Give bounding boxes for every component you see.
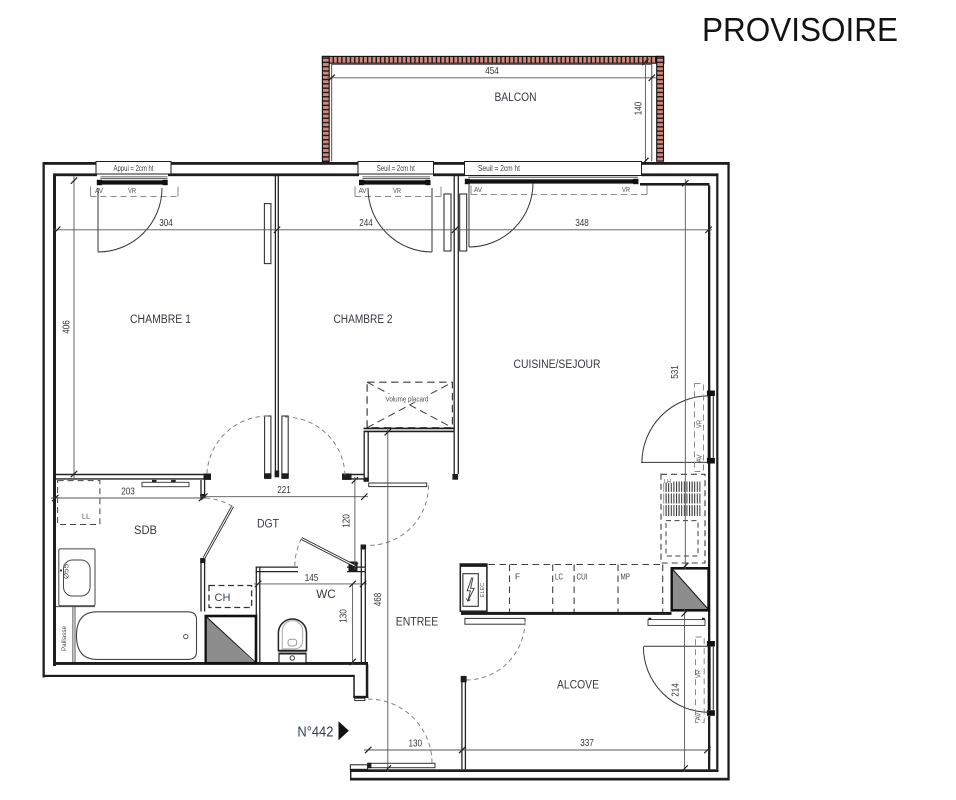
svg-text:468: 468 — [372, 593, 384, 607]
svg-text:130: 130 — [338, 609, 350, 623]
svg-text:304: 304 — [159, 217, 173, 229]
svg-text:Paillasse: Paillasse — [61, 626, 68, 651]
svg-text:CHAMBRE 2: CHAMBRE 2 — [334, 314, 393, 326]
svg-text:VR: VR — [393, 186, 401, 195]
svg-text:N°442: N°442 — [297, 724, 333, 741]
svg-text:Volume placard: Volume placard — [386, 394, 429, 403]
svg-text:VR: VR — [622, 185, 630, 194]
svg-text:203: 203 — [121, 486, 135, 498]
svg-text:214: 214 — [669, 683, 681, 697]
svg-text:Seuil = 2cm ht: Seuil = 2cm ht — [478, 164, 521, 173]
svg-text:221: 221 — [277, 484, 291, 496]
svg-text:454: 454 — [485, 65, 499, 77]
svg-text:406: 406 — [61, 320, 73, 334]
svg-text:CUI: CUI — [577, 573, 588, 582]
svg-text:AV: AV — [695, 455, 704, 463]
svg-text:PROVISOIRE: PROVISOIRE — [702, 11, 898, 48]
svg-text:ENTREE: ENTREE — [396, 617, 439, 629]
svg-text:WC: WC — [316, 589, 336, 601]
svg-text:LH: LH — [664, 479, 671, 485]
svg-text:244: 244 — [359, 217, 373, 229]
svg-text:CH: CH — [215, 592, 231, 604]
svg-text:LC: LC — [555, 573, 563, 582]
svg-text:Seuil = 2cm ht: Seuil = 2cm ht — [377, 164, 416, 173]
svg-text:CHAMBRE 1: CHAMBRE 1 — [130, 314, 191, 326]
svg-text:BALCON: BALCON — [495, 92, 537, 104]
svg-text:Appui = 2cm ht: Appui = 2cm ht — [114, 164, 155, 173]
svg-text:145: 145 — [305, 572, 319, 584]
svg-text:VR: VR — [128, 186, 136, 195]
svg-text:337: 337 — [580, 737, 594, 749]
svg-text:CUISINE/SEJOUR: CUISINE/SEJOUR — [514, 359, 601, 371]
svg-text:DGT: DGT — [257, 519, 279, 531]
svg-text:VR: VR — [694, 670, 703, 678]
svg-text:120: 120 — [341, 514, 353, 528]
svg-text:140: 140 — [633, 102, 645, 116]
svg-text:AV: AV — [95, 186, 103, 195]
svg-text:531: 531 — [669, 365, 681, 379]
svg-text:Ø55: Ø55 — [62, 564, 71, 579]
svg-text:ALCOVE: ALCOVE — [557, 680, 599, 692]
svg-text:LL: LL — [82, 512, 90, 521]
svg-text:AV: AV — [694, 713, 703, 721]
svg-text:348: 348 — [575, 217, 589, 229]
svg-text:AV: AV — [359, 186, 367, 195]
svg-text:VR: VR — [695, 420, 704, 428]
svg-text:SDB: SDB — [134, 525, 157, 537]
svg-text:130: 130 — [409, 738, 423, 750]
svg-text:AV: AV — [474, 185, 482, 194]
svg-text:F: F — [515, 573, 520, 582]
svg-text:ELEC: ELEC — [480, 583, 486, 597]
svg-text:MP: MP — [621, 573, 631, 582]
